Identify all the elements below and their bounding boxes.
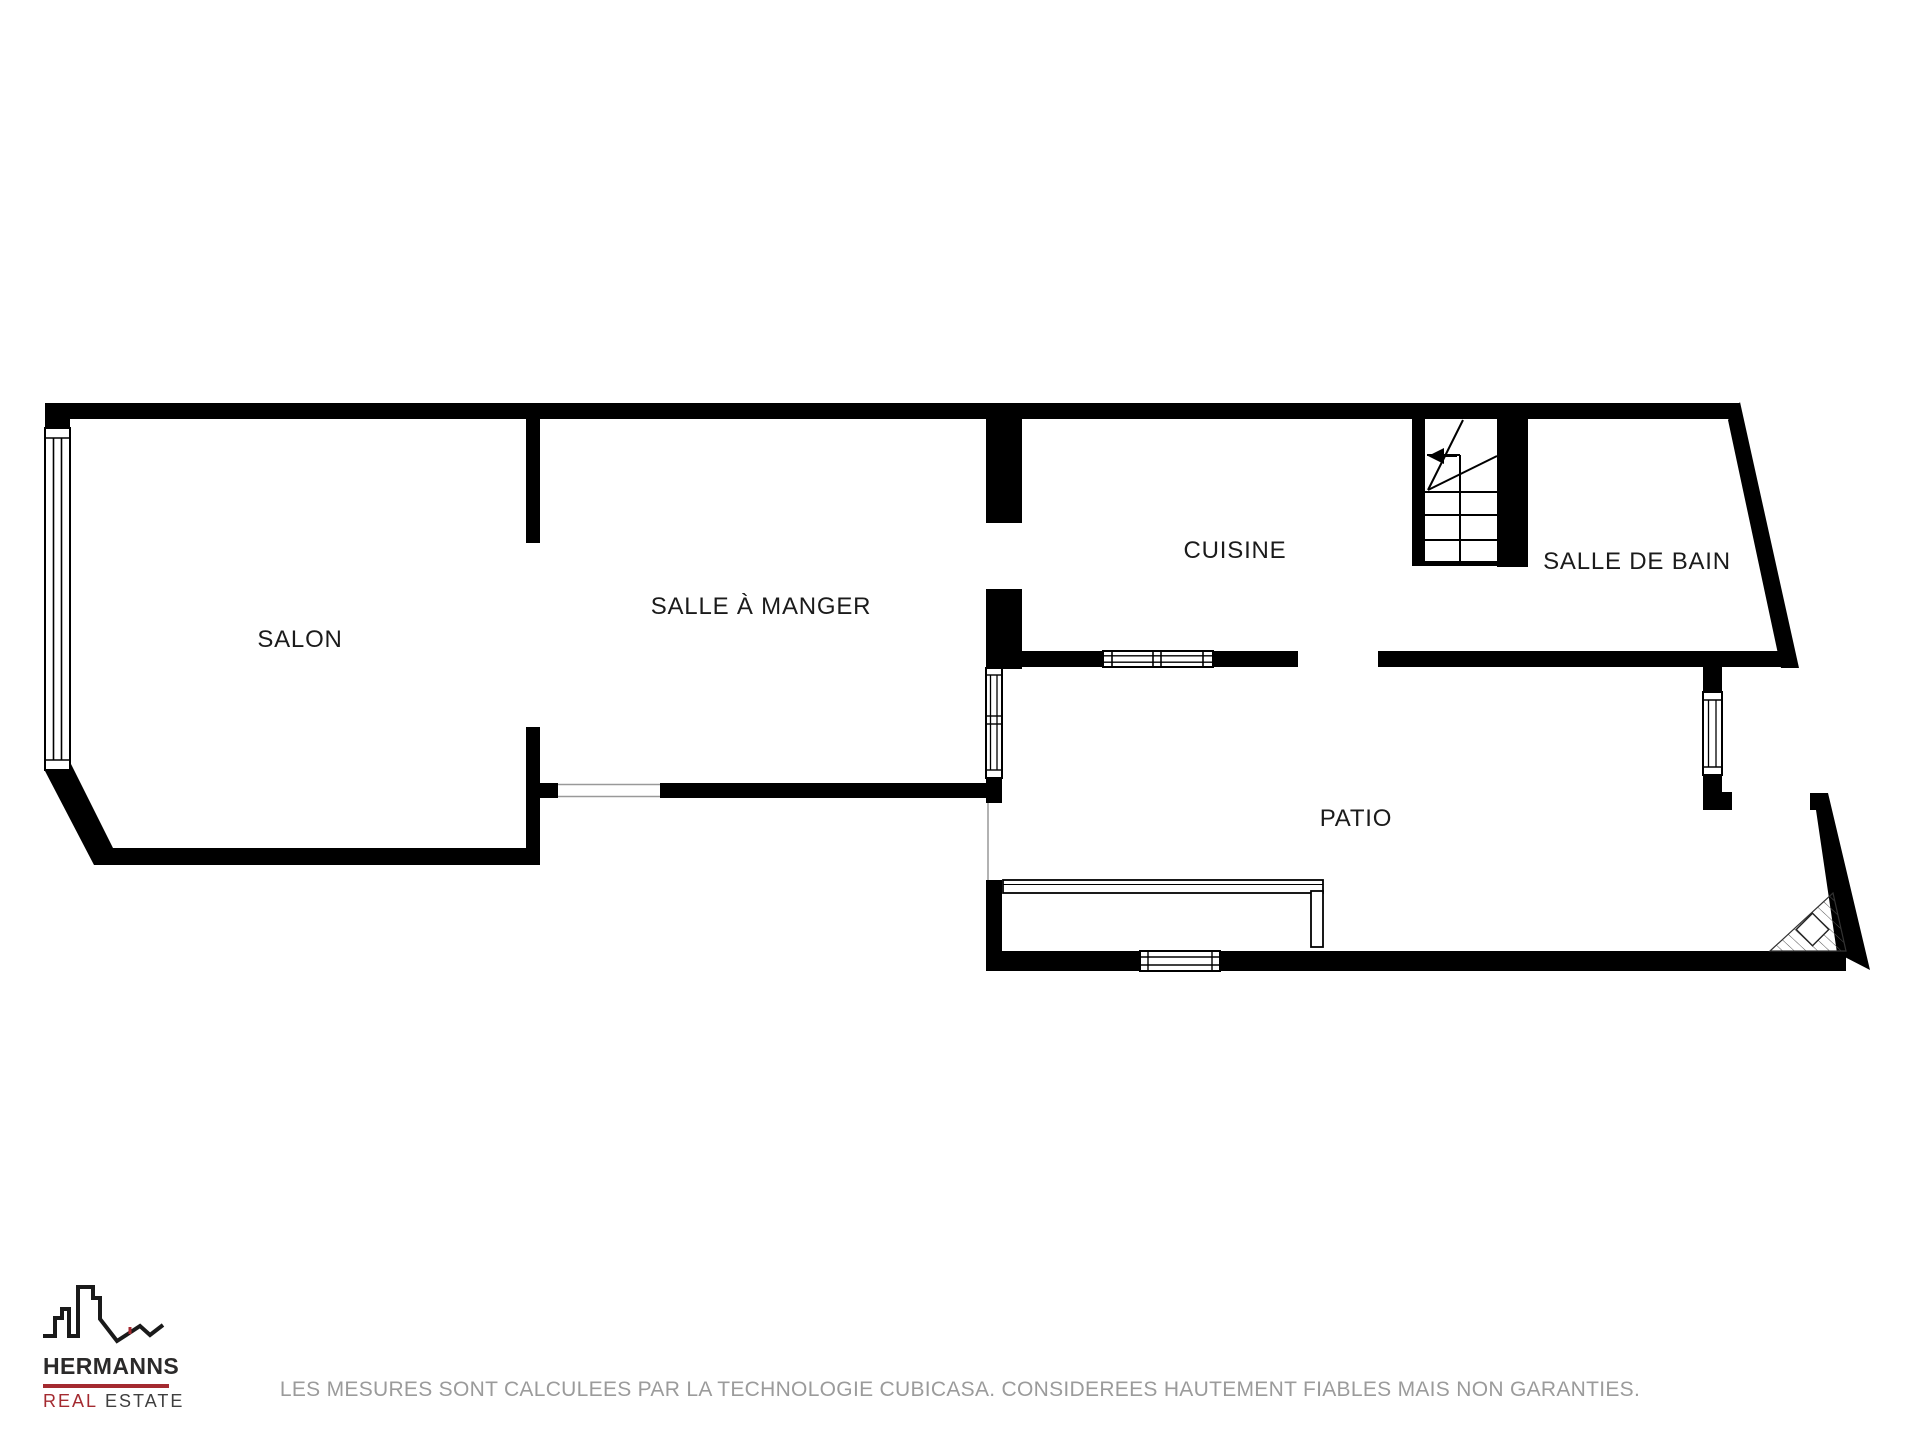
patio-bottom-window-icon (1140, 951, 1220, 971)
cuisine-window-icon (1103, 651, 1213, 667)
stairs-icon (1425, 420, 1497, 561)
measurement-disclaimer: LES MESURES SONT CALCULEES PAR LA TECHNO… (280, 1378, 1640, 1402)
room-label-patio: PATIO (1320, 805, 1392, 833)
city-skyline-icon (43, 1284, 169, 1344)
room-label-cuisine: CUISINE (1184, 537, 1287, 565)
patio-left-window-icon (986, 668, 1002, 778)
opening-marks (558, 785, 988, 881)
logo-tagline: REAL ESTATE (43, 1391, 175, 1412)
patio-right-window-icon (1703, 692, 1722, 775)
walls-layer (45, 402, 1870, 971)
room-label-salon: SALON (257, 626, 342, 654)
logo-tagline-estate: ESTATE (105, 1391, 184, 1411)
salon-window-icon (45, 428, 70, 770)
stairs-direction-arrow-icon (1428, 448, 1444, 464)
logo-divider (43, 1384, 169, 1388)
agency-logo: HERMANNS REAL ESTATE (43, 1284, 175, 1412)
logo-name: HERMANNS (43, 1353, 175, 1380)
window-icons (45, 428, 1722, 971)
patio-low-wall (1003, 880, 1323, 947)
hatched-corner-icon (1770, 893, 1846, 951)
room-label-salle-de-bain: SALLE DE BAIN (1543, 548, 1731, 576)
room-label-salle-a-manger: SALLE À MANGER (651, 593, 872, 621)
floorplan-drawing (0, 0, 1920, 1440)
floorplan-page: SALON SALLE À MANGER CUISINE SALLE DE BA… (0, 0, 1920, 1440)
logo-tagline-real: REAL (43, 1391, 98, 1411)
